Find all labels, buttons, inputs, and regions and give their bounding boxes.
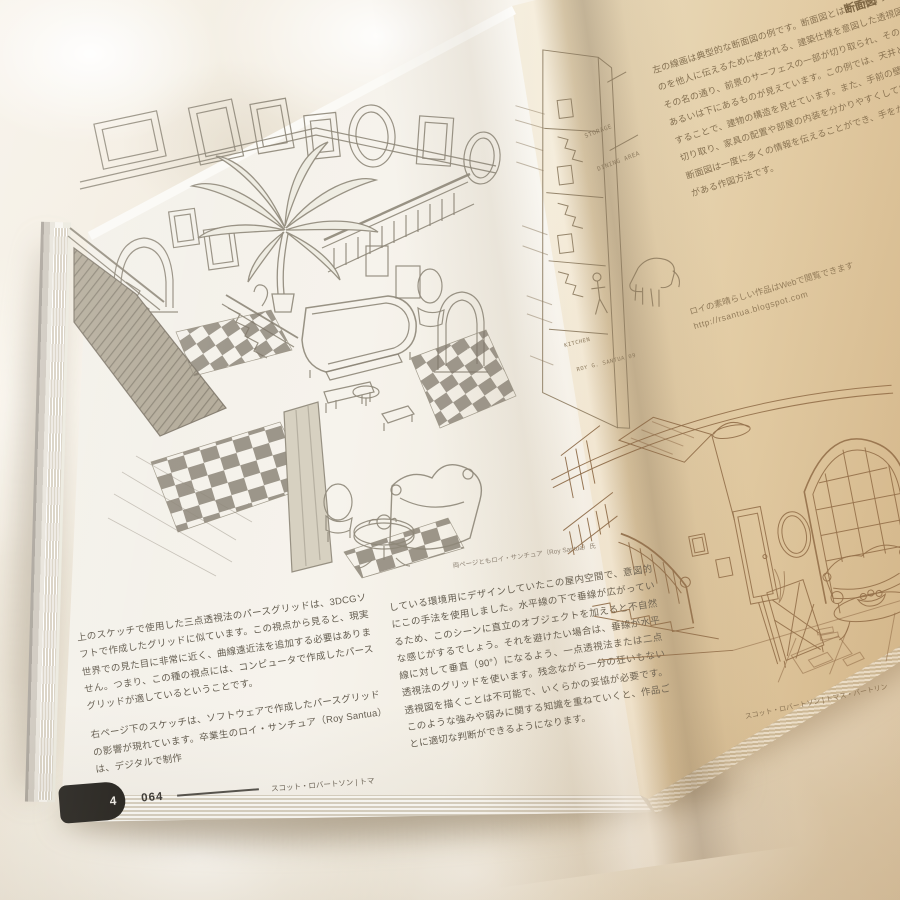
picture-wall xyxy=(80,98,503,270)
palm-plant xyxy=(192,142,378,312)
grand-piano xyxy=(302,296,416,406)
ceiling-lamp xyxy=(711,419,751,441)
checkered-floor xyxy=(151,310,516,578)
person-sketch xyxy=(590,272,609,314)
console-and-mirror xyxy=(366,246,444,327)
footer-rule xyxy=(177,788,259,796)
page-number: 064 xyxy=(141,791,164,805)
chapter-number: 4 xyxy=(109,793,117,807)
arched-window xyxy=(796,430,900,603)
wall-frames xyxy=(689,530,733,582)
door xyxy=(733,504,790,608)
footer-credit: スコット・ロバートソン | トマ xyxy=(271,775,375,794)
wall-wedge-center xyxy=(284,402,332,572)
chapter-tab: 4 xyxy=(58,781,127,824)
coffee-table xyxy=(830,578,900,640)
horse-sketch xyxy=(627,256,682,310)
left-page-interior-sketch xyxy=(66,70,522,580)
sloped-ceiling xyxy=(616,406,734,539)
photo-open-book-on-blanket: 両ページともロイ・サンチュア（Roy Santua）氏 上のスケッチで使用した三… xyxy=(0,0,900,900)
benches xyxy=(324,382,414,431)
window-sofa xyxy=(819,541,900,604)
